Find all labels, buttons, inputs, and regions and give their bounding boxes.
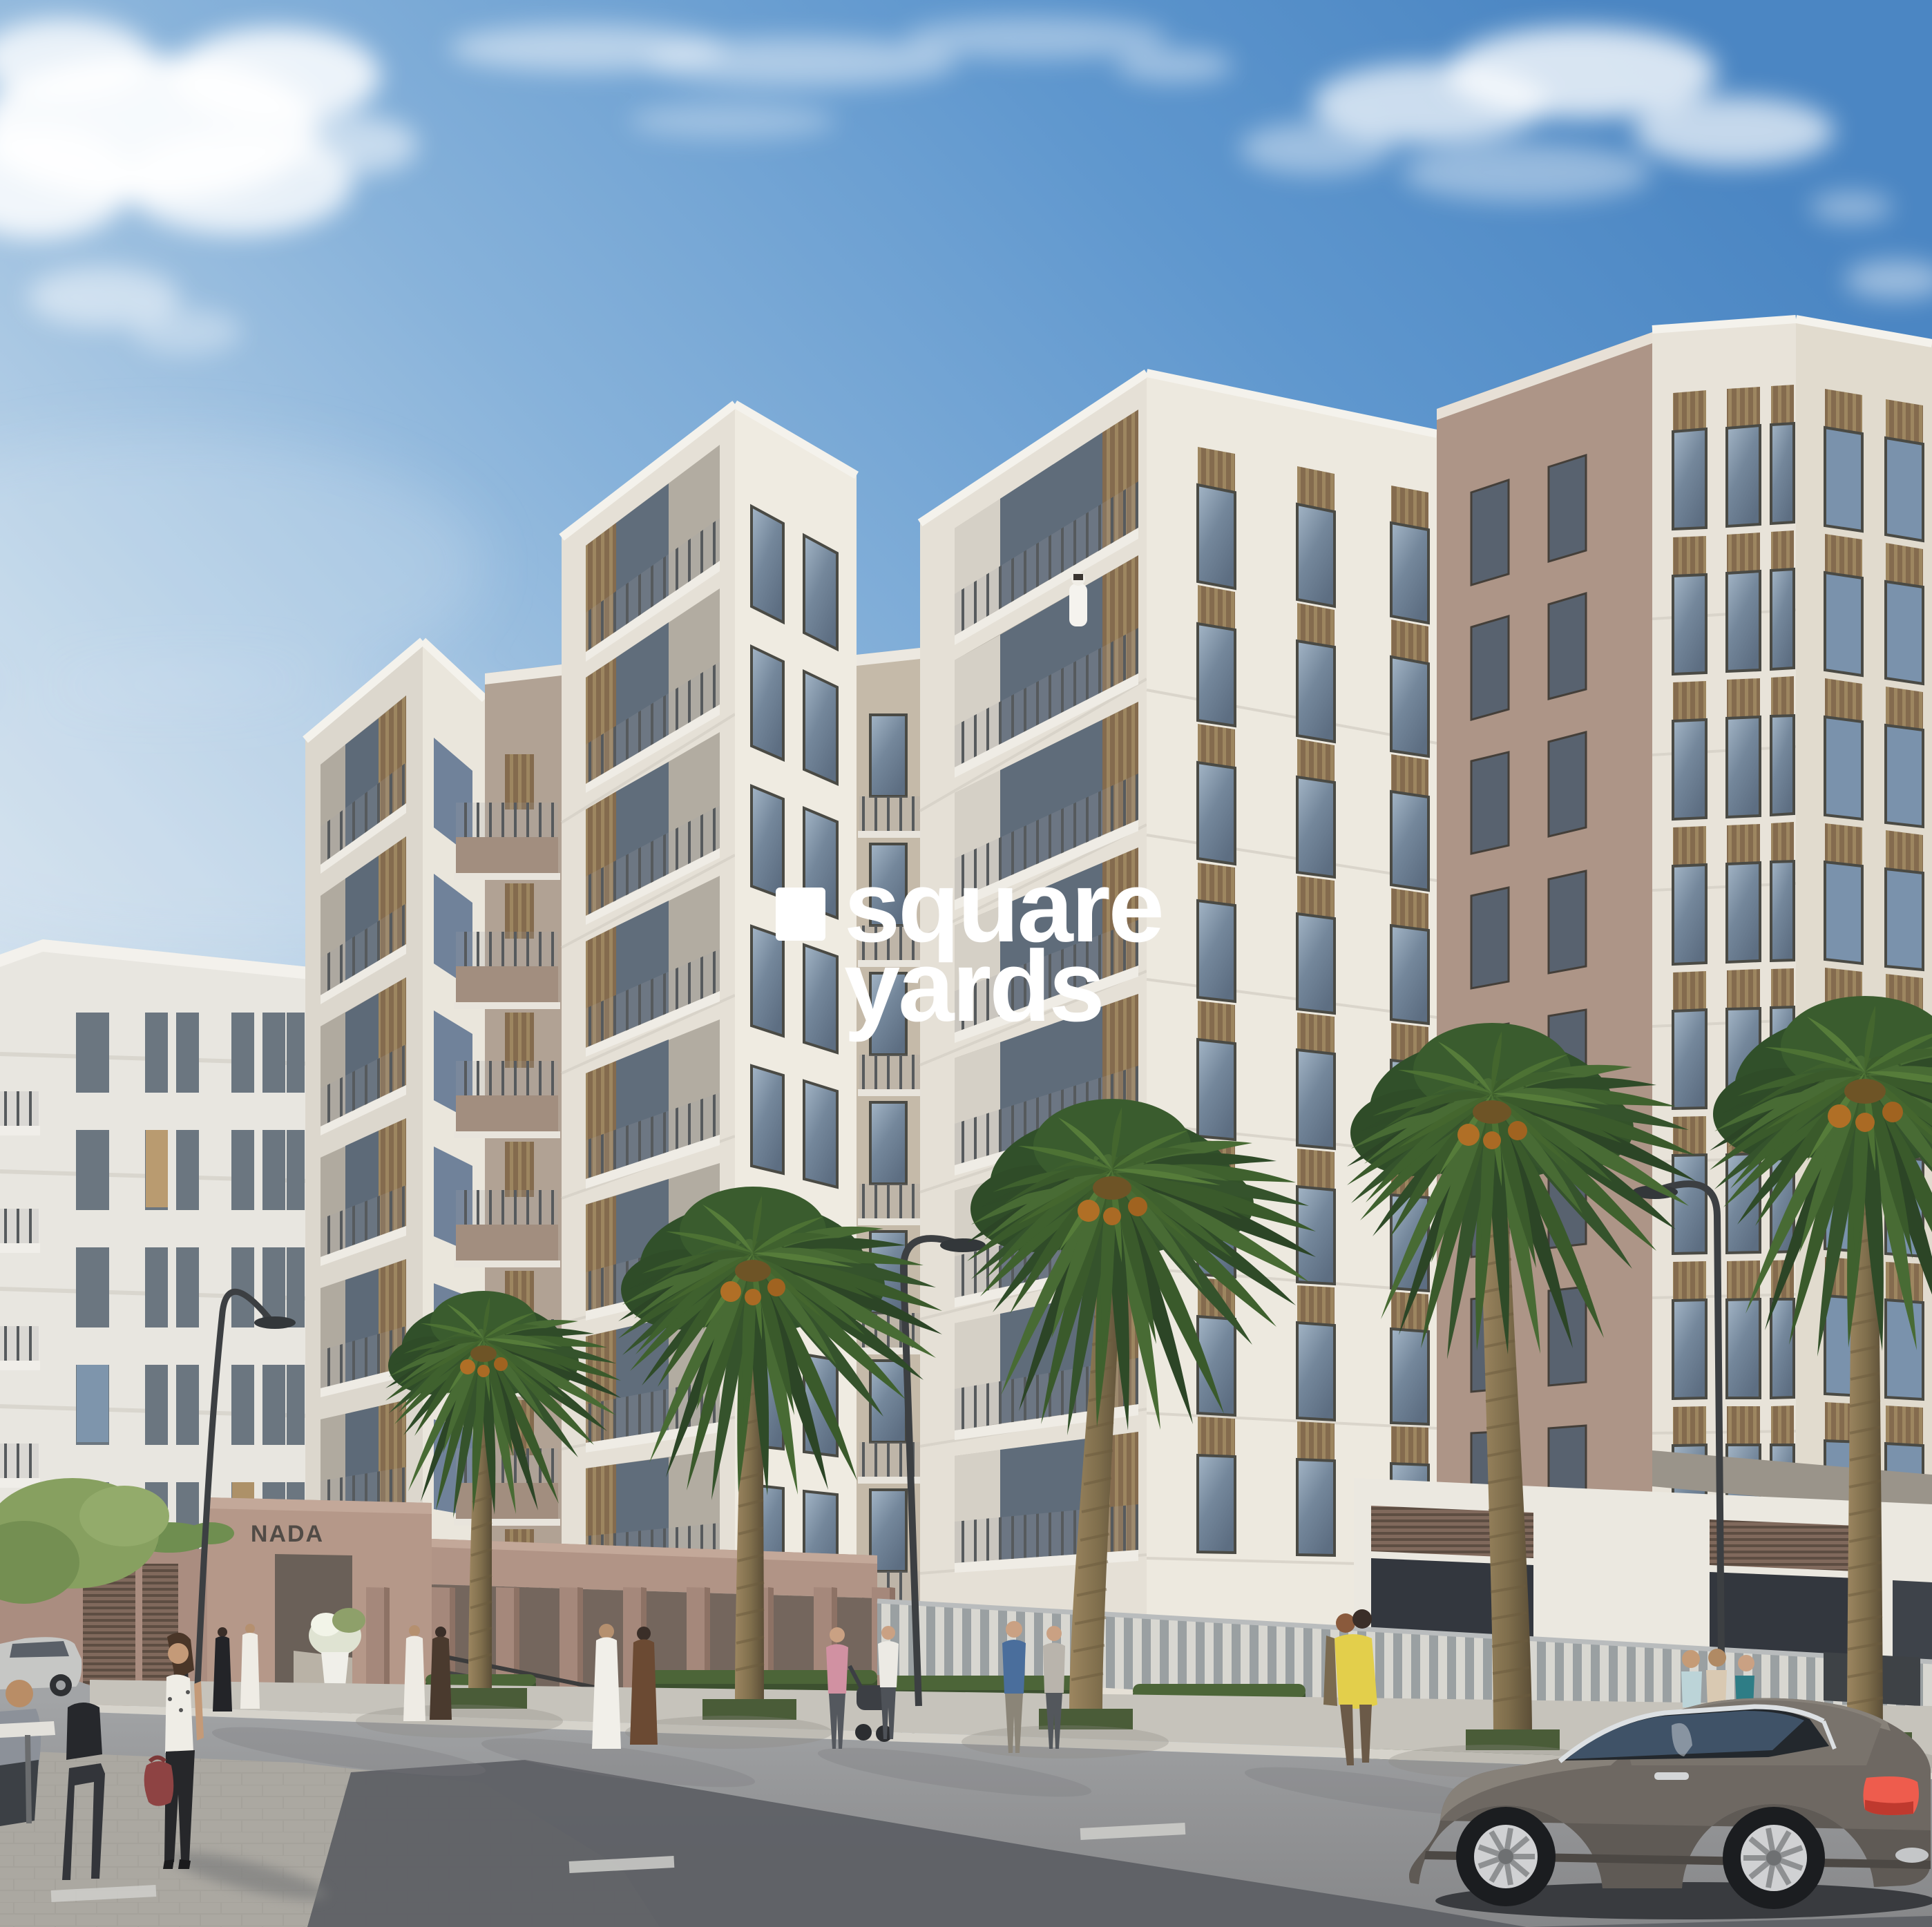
- svg-text:yards: yards: [844, 930, 1103, 1042]
- svg-text:NADA: NADA: [251, 1521, 324, 1547]
